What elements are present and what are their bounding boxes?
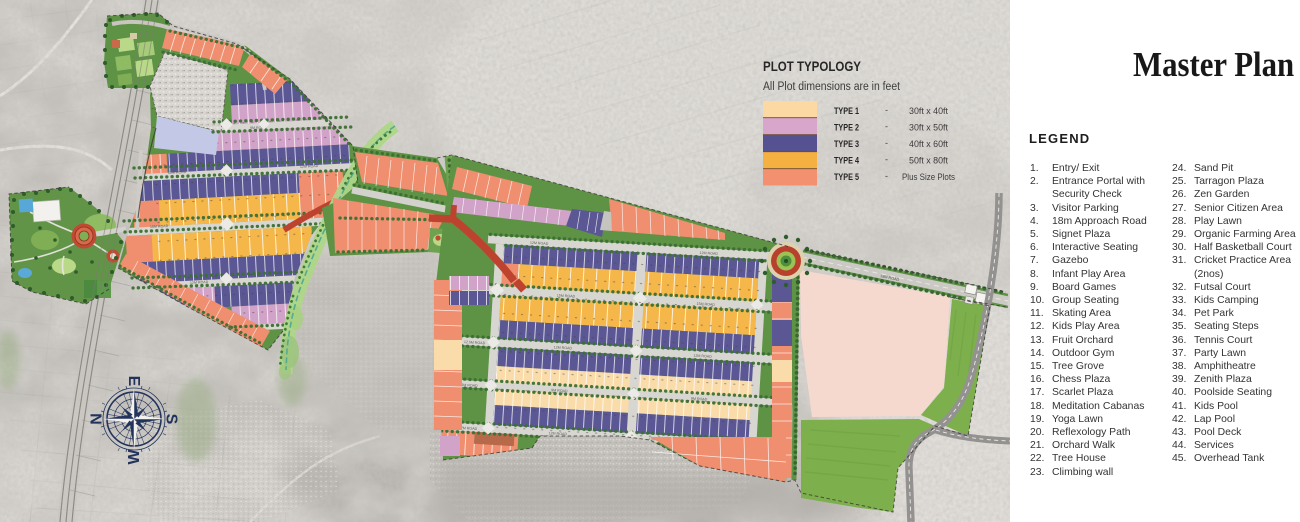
svg-text:N: N <box>89 413 106 425</box>
svg-text:All Plot dimensions are in fee: All Plot dimensions are in feet <box>763 81 901 93</box>
svg-text:TYPE 5: TYPE 5 <box>834 172 860 183</box>
svg-text:TYPE 3: TYPE 3 <box>834 139 859 150</box>
svg-text:-: - <box>885 171 888 181</box>
svg-text:PLOT TYPOLOGY: PLOT TYPOLOGY <box>763 58 862 74</box>
svg-text:E: E <box>125 376 142 387</box>
svg-text:-: - <box>885 155 888 165</box>
svg-text:-: - <box>885 122 888 132</box>
svg-text:50ft x 80ft: 50ft x 80ft <box>909 156 948 166</box>
svg-text:W: W <box>126 449 143 465</box>
svg-text:S: S <box>163 414 180 425</box>
svg-text:TYPE 2: TYPE 2 <box>834 123 859 134</box>
svg-text:TYPE 1: TYPE 1 <box>834 106 860 117</box>
svg-text:30ft x 40ft: 30ft x 40ft <box>909 106 948 116</box>
svg-text:40ft x 60ft: 40ft x 60ft <box>909 139 948 149</box>
svg-text:Plus Size Plots: Plus Size Plots <box>902 172 955 182</box>
svg-text:30ft x 50ft: 30ft x 50ft <box>909 123 948 133</box>
svg-text:-: - <box>885 105 888 115</box>
svg-text:TYPE 4: TYPE 4 <box>834 156 860 167</box>
svg-text:-: - <box>885 138 888 148</box>
